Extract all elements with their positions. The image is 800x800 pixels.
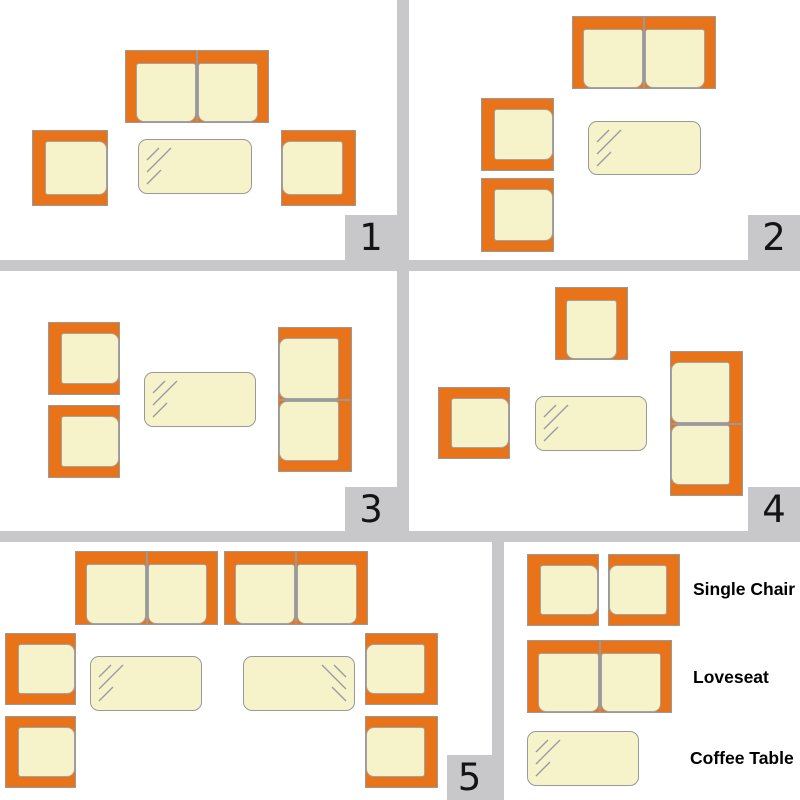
loveseat-shape — [278, 327, 352, 400]
single-chair-shape-cushion — [45, 141, 107, 195]
glass-reflection-icon — [148, 376, 194, 422]
coffee-table-shape — [527, 731, 639, 786]
single-chair-shape — [281, 130, 356, 206]
single-chair-shape-cushion — [540, 565, 598, 615]
single-chair-shape-cushion — [451, 398, 509, 448]
loveseat-shape-cushion — [297, 564, 357, 624]
single-chair-shape — [365, 633, 438, 705]
single-chair-shape — [438, 387, 510, 459]
single-chair-shape-cushion — [61, 416, 119, 467]
loveseat-shape — [670, 424, 743, 496]
single-chair-shape-cushion — [609, 565, 667, 615]
loveseat-shape-cushion — [279, 338, 339, 399]
single-chair-shape-cushion — [18, 727, 75, 777]
coffee-table-shape — [90, 656, 202, 711]
loveseat-shape — [644, 16, 716, 89]
single-chair-shape-cushion — [282, 141, 343, 195]
loveseat-shape-cushion — [235, 564, 295, 624]
single-chair-shape-cushion — [61, 333, 119, 384]
single-chair-shape — [555, 287, 628, 360]
coffee-table-shape — [588, 121, 701, 175]
loveseat-shape — [75, 551, 147, 625]
loveseat-shape — [147, 551, 218, 625]
legend-label-loveseat: Loveseat — [693, 667, 769, 688]
single-chair-shape — [527, 554, 599, 626]
glass-reflection-icon — [142, 143, 188, 189]
single-chair-shape — [32, 130, 108, 206]
loveseat-shape — [125, 50, 197, 123]
loveseat-shape-cushion — [538, 653, 599, 712]
panel-number-2: 2 — [748, 215, 800, 260]
panel-number-5: 5 — [447, 755, 492, 800]
coffee-table-shape — [243, 656, 355, 711]
loveseat-shape-cushion — [645, 29, 705, 88]
single-chair-shape-cushion — [494, 109, 553, 160]
panel-number-4: 4 — [748, 487, 800, 532]
loveseat-shape-cushion — [671, 362, 730, 423]
single-chair-shape — [48, 322, 120, 395]
single-chair-shape — [48, 405, 120, 478]
panel-number-3: 3 — [345, 487, 397, 532]
coffee-table-shape — [144, 372, 256, 427]
coffee-table-shape — [535, 396, 647, 451]
single-chair-shape-cushion — [366, 644, 425, 694]
loveseat-shape-cushion — [279, 401, 339, 461]
panel-number-1: 1 — [345, 215, 397, 260]
single-chair-shape-cushion — [18, 644, 75, 694]
loveseat-shape-cushion — [148, 564, 207, 624]
loveseat-shape-cushion — [671, 425, 730, 485]
glass-reflection-icon — [531, 735, 577, 781]
glass-reflection-icon — [305, 660, 351, 706]
loveseat-shape — [197, 50, 269, 123]
loveseat-shape-cushion — [601, 653, 661, 712]
furniture-layout-diagram: 1 2 3 4 5 Single Chair Loveseat Coffee T… — [0, 0, 800, 800]
loveseat-shape — [296, 551, 368, 625]
panel-divider-vertical-lower — [492, 531, 504, 800]
loveseat-shape — [527, 640, 600, 713]
single-chair-shape — [481, 178, 554, 252]
loveseat-shape-cushion — [198, 63, 258, 122]
loveseat-shape — [224, 551, 296, 625]
glass-reflection-icon — [539, 400, 585, 446]
loveseat-shape-cushion — [136, 63, 196, 122]
glass-reflection-icon — [592, 125, 638, 171]
single-chair-shape — [365, 716, 438, 788]
single-chair-shape — [5, 633, 76, 705]
loveseat-shape-cushion — [86, 564, 146, 624]
loveseat-shape — [278, 400, 352, 472]
single-chair-shape — [481, 98, 554, 171]
coffee-table-shape — [138, 139, 252, 194]
loveseat-shape — [600, 640, 672, 713]
loveseat-shape — [670, 351, 743, 424]
single-chair-shape-cushion — [494, 189, 553, 241]
panel-divider-vertical-upper — [397, 0, 409, 542]
loveseat-shape — [572, 16, 644, 89]
single-chair-shape — [608, 554, 680, 626]
single-chair-shape-cushion — [366, 727, 425, 777]
single-chair-shape — [5, 716, 76, 788]
glass-reflection-icon — [94, 660, 140, 706]
single-chair-shape-cushion — [566, 300, 617, 359]
legend-label-single-chair: Single Chair — [693, 579, 795, 600]
legend-label-coffee-table: Coffee Table — [690, 748, 794, 769]
loveseat-shape-cushion — [583, 29, 643, 88]
